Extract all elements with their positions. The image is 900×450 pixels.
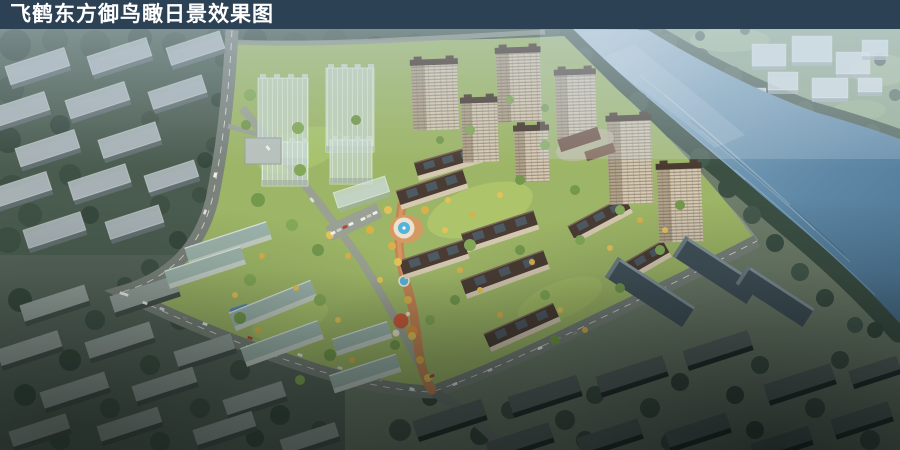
rendering-viewport: 飞鹤东方御鸟瞰日景效果图: [0, 0, 900, 450]
vignette-right: [0, 29, 900, 450]
aerial-rendering: [0, 0, 900, 450]
title-bar: 飞鹤东方御鸟瞰日景效果图: [0, 0, 900, 29]
title-text: 飞鹤东方御鸟瞰日景效果图: [10, 0, 274, 29]
